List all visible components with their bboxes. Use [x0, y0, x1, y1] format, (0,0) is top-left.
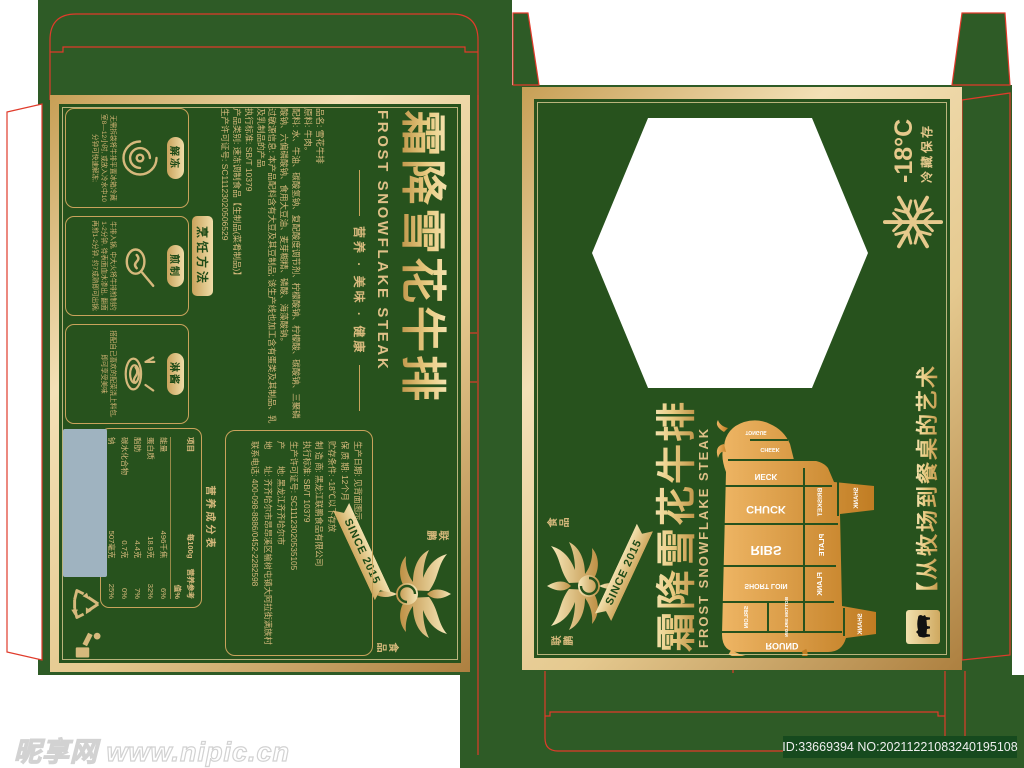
svg-text:TONGUE: TONGUE [745, 429, 767, 435]
front-product-subtitle: FROST SNOWFLAKE STEAK [696, 427, 711, 648]
svg-text:BRISKET: BRISKET [817, 488, 824, 517]
brand-zh-top: 联鹏 [425, 526, 449, 541]
back-product-subtitle: FROST SNOWFLAKE STEAK [374, 110, 391, 411]
left-glue-flap [7, 104, 42, 660]
thaw-steak-icon [118, 136, 162, 180]
svg-text:FLANK: FLANK [817, 572, 824, 596]
step-fry-text: 牛排入锅, 中大火将牛排煎制约1-2分钟, 待表面血水渗出, 翻面再煎1-2分钟… [89, 220, 116, 312]
svg-text:RIBS: RIBS [750, 543, 781, 558]
svg-text:SIRLOIN: SIRLOIN [744, 606, 750, 628]
svg-text:SHANK: SHANK [858, 613, 864, 635]
storage-label: 冷藏保存 [918, 119, 935, 183]
svg-text:SHANK: SHANK [854, 487, 860, 509]
nutrition-row-fat: 脂肪4.4克7% [131, 437, 144, 599]
storage-temp: -18°C [891, 119, 917, 183]
phoenix-logo-icon [371, 544, 453, 644]
cooking-step-sauce: 淋酱 搭配自己喜欢的配菜浇上料包, 即可享受美味 [65, 324, 189, 424]
back-product-title: 霜降雪花牛排 [393, 110, 459, 411]
nipic-watermark: 昵享网 www.nipic.cn [14, 730, 290, 768]
step-thaw-badge: 解冻 [167, 137, 184, 179]
packaging-dieline-canvas: 霜降雪花牛排 FROST SNOWFLAKE STEAK 营养 · 美味 · 健… [0, 0, 1024, 768]
nutrition-table: 项目 每100g 营养参考值% 能量496千焦6% 蛋白质18.9克32% 脂肪… [100, 428, 202, 608]
step-thaw-text: 无需拆袋将牛排平置冰箱冷藏室8—12小时, 或放入冷水中10分钟可快速解冻; [89, 112, 116, 204]
cow-silhouette-icon [912, 613, 934, 641]
svg-text:ROUND: ROUND [766, 641, 799, 651]
brand-zh-top: 联鹏 [551, 635, 575, 650]
nutrition-row-protein: 蛋白质18.9克32% [144, 437, 157, 599]
brand-zh-bottom: 食品 [547, 517, 571, 532]
back-panel: 霜降雪花牛排 FROST SNOWFLAKE STEAK 营养 · 美味 · 健… [50, 95, 470, 672]
step-sauce-text: 搭配自己喜欢的配菜浇上料包, 即可享受美味 [98, 328, 116, 420]
svg-text:CHUCK: CHUCK [746, 503, 786, 515]
back-info-text: 品名: 雪花牛排 原料: 牛肉。 配料: 水、牛油、碳酸氢钠、复配酸度调节剂、柠… [209, 108, 325, 424]
nutrition-facts: 营养成分表 项目 每100g 营养参考值% 能量496千焦6% 蛋白质18.9克… [100, 428, 219, 608]
nutrition-row-energy: 能量496千焦6% [157, 437, 170, 599]
back-slogan: 营养 · 美味 · 健康 [351, 226, 368, 355]
top-glue-tab-left [513, 13, 539, 85]
die-cut-hexagon-window [592, 118, 868, 388]
stock-id-bar: ID:33669394 NO:20211221083240195108 [783, 736, 1017, 758]
cooking-step-thaw: 解冻 无需拆袋将牛排平置冰箱冷藏室8—12小时, 或放入冷水中10分钟可快速解冻… [65, 108, 189, 208]
front-product-title: 霜降雪花牛排 [644, 400, 702, 652]
svg-text:SHORT LOIN: SHORT LOIN [744, 582, 787, 589]
step-fry-badge: 煎制 [167, 245, 184, 287]
nutrition-header-row: 项目 每100g 营养参考值% [170, 437, 197, 599]
plate-sauce-icon [118, 352, 162, 396]
nutrition-row-carbs: 碳水化合物0.7克0% [118, 437, 131, 599]
front-tagline: 【从牧场到餐桌的艺术 [910, 364, 942, 604]
top-glue-tab-right [952, 13, 1010, 85]
manufacturer-box: 生产日期: 见背面图示 保 质 期: 12个月 贮存条件: -18℃以下存放 制… [225, 430, 373, 656]
manufacturer-text: 生产日期: 见背面图示 保 质 期: 12个月 贮存条件: -18℃以下存放 制… [248, 441, 364, 645]
svg-text:BOTTOM SIRLOIN: BOTTOM SIRLOIN [784, 597, 789, 637]
freeze-info: -18°C 冷藏保存 [882, 119, 944, 253]
beef-cuts-diagram: TONGUE CHEEK NECK CHUCK BRISKET SHANK RI… [710, 420, 882, 656]
svg-text:NECK: NECK [755, 472, 778, 481]
step-sauce-badge: 淋酱 [167, 353, 184, 395]
snowflake-icon [882, 191, 944, 253]
cooking-step-fry: 煎制 牛排入锅, 中大火将牛排煎制约1-2分钟, 待表面血水渗出, 翻面再煎1-… [65, 216, 189, 316]
back-panel-face: 霜降雪花牛排 FROST SNOWFLAKE STEAK 营养 · 美味 · 健… [59, 104, 461, 663]
nutrition-col-item: 项目 [171, 437, 197, 508]
front-brand-logo: 联鹏 食品 SINCE 2015 [537, 490, 645, 650]
barcode-placeholder [63, 429, 107, 577]
brand-zh-bottom: 食品 [375, 638, 399, 653]
recycle-icon [69, 586, 105, 622]
nutrition-col-nrv: 营养参考值% [171, 558, 197, 599]
tidyman-icon [69, 626, 105, 662]
frying-pan-icon [118, 244, 162, 288]
cow-icon-box [906, 610, 940, 644]
nutrition-title: 营养成分表 [204, 428, 219, 608]
svg-text:PLATE: PLATE [819, 534, 826, 557]
cooking-methods-label: 烹饪方法 [192, 216, 213, 296]
svg-text:CHEEK: CHEEK [760, 446, 779, 452]
nutrition-col-per100g: 每100g [171, 508, 197, 558]
